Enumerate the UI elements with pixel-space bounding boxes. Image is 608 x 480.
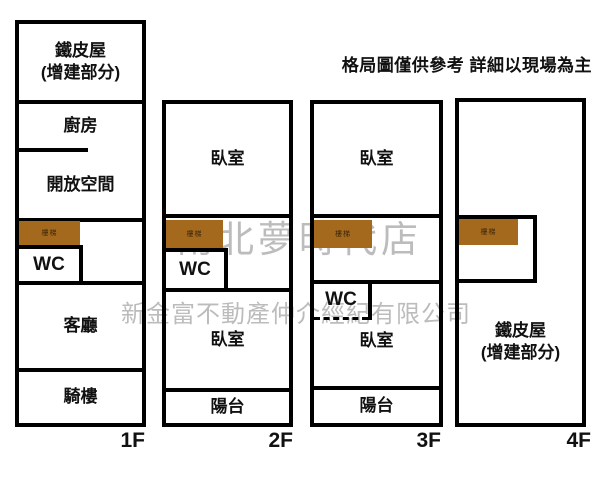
floor-label-4f: 4F (531, 429, 591, 453)
room-label-balcony-2f: 陽台 (166, 392, 289, 423)
room-label-bedroom-top-2f: 臥室 (166, 104, 289, 214)
floor-plan-1f: 鐵皮屋 (增建部分) 廚房 開放空間 樓梯 WC 客廳 騎樓 (15, 20, 146, 427)
room-label-arcade: 騎樓 (19, 372, 142, 423)
floor-plan-3f: 臥室 樓梯 WC 臥室 陽台 (310, 100, 443, 427)
room-label-bedroom-bottom-3f: 臥室 (314, 296, 439, 386)
stairs-box-4f: 樓梯 (459, 219, 518, 245)
tin-roof-1f-line1: 鐵皮屋 (55, 40, 106, 62)
room-label-balcony-3f: 陽台 (314, 390, 439, 423)
room-label-open-space: 開放空間 (19, 152, 142, 218)
room-label-tin-roof-4f: 鐵皮屋 (增建部分) (459, 297, 582, 387)
floor-label-1f: 1F (85, 429, 145, 453)
room-label-bedroom-top-3f: 臥室 (314, 104, 439, 214)
stairs-box-3f: 樓梯 (314, 220, 372, 248)
floor-plan-4f: 樓梯 鐵皮屋 (增建部分) (455, 98, 586, 427)
floor-label-3f: 3F (381, 429, 441, 453)
room-label-kitchen: 廚房 (19, 104, 142, 148)
stairwell-enclosure-4f: 樓梯 (459, 215, 537, 283)
wall-divider (166, 214, 289, 218)
floor-label-2f: 2F (233, 429, 293, 453)
room-label-wc-2f: WC (166, 248, 228, 288)
floor-plan-canvas: 南北夢時代店 新金富不動產仲介經紀有限公司 格局圖僅供參考 詳細以現場為主 鐵皮… (0, 0, 608, 480)
room-label-tin-roof-1f: 鐵皮屋 (增建部分) (19, 24, 142, 100)
room-label-wc-1f: WC (19, 245, 83, 285)
stairs-box-1f: 樓梯 (19, 221, 80, 245)
disclaimer-text: 格局圖僅供參考 詳細以現場為主 (340, 51, 592, 76)
stairs-box-2f: 樓梯 (166, 220, 223, 248)
room-label-bedroom-bottom-2f: 臥室 (166, 292, 289, 388)
floor-plan-2f: 臥室 樓梯 WC 臥室 陽台 (162, 100, 293, 427)
tin-roof-1f-line2: (增建部分) (41, 62, 120, 84)
wall-divider (314, 214, 439, 218)
tin-roof-4f-line2: (增建部分) (481, 342, 560, 364)
tin-roof-4f-line1: 鐵皮屋 (495, 320, 546, 342)
room-label-living-room: 客廳 (19, 285, 142, 368)
